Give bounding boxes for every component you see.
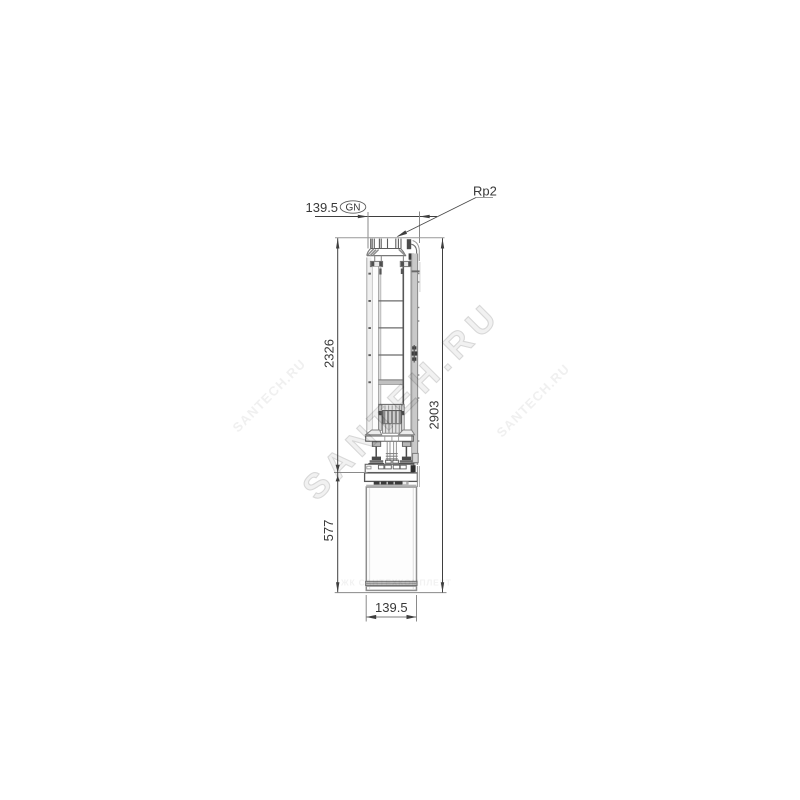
svg-text:Rp2: Rp2 (473, 184, 497, 199)
svg-text:139.5: 139.5 (375, 600, 408, 615)
svg-text:139.5: 139.5 (306, 200, 339, 215)
svg-text:577: 577 (321, 520, 336, 542)
svg-text:GN: GN (346, 203, 361, 214)
svg-text:ЖК САНТЕХКОМПЛЕКТ: ЖК САНТЕХКОМПЛЕКТ (340, 578, 452, 588)
svg-text:2326: 2326 (322, 339, 337, 368)
svg-text:2903: 2903 (427, 401, 442, 430)
